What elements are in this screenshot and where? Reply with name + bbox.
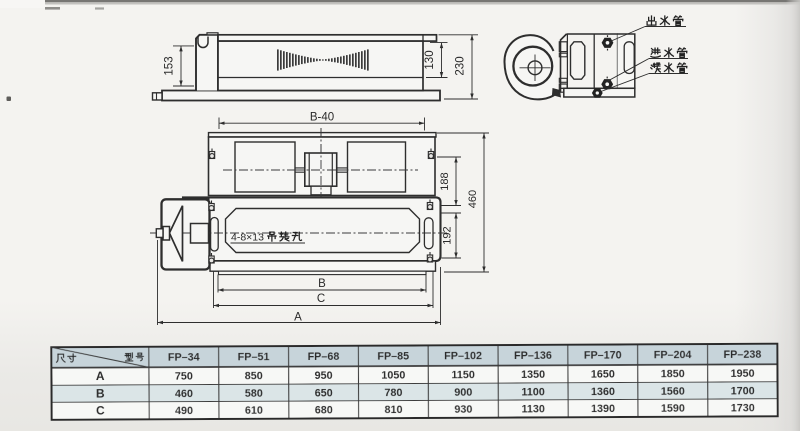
svg-text:C: C xyxy=(96,404,105,418)
svg-text:680: 680 xyxy=(315,404,333,416)
svg-text:780: 780 xyxy=(384,387,402,399)
svg-text:1100: 1100 xyxy=(521,386,544,398)
svg-text:230: 230 xyxy=(455,56,467,75)
svg-text:FP–136: FP–136 xyxy=(514,350,552,362)
svg-text:1390: 1390 xyxy=(591,403,615,415)
svg-text:FP–102: FP–102 xyxy=(444,350,482,362)
svg-text:460: 460 xyxy=(175,388,193,400)
svg-text:FP–68: FP–68 xyxy=(308,351,340,363)
svg-text:A: A xyxy=(294,312,302,324)
svg-text:850: 850 xyxy=(245,370,263,382)
svg-text:930: 930 xyxy=(454,404,472,416)
svg-text:FP–170: FP–170 xyxy=(584,350,622,362)
svg-text:FP–51: FP–51 xyxy=(238,351,270,363)
svg-text:1360: 1360 xyxy=(591,386,615,398)
svg-text:FP–204: FP–204 xyxy=(654,349,692,361)
svg-text:1050: 1050 xyxy=(381,370,405,382)
svg-text:1650: 1650 xyxy=(591,369,615,381)
svg-text:950: 950 xyxy=(315,370,333,382)
svg-text:4-8×13: 4-8×13 xyxy=(231,232,264,244)
svg-text:1590: 1590 xyxy=(661,403,685,415)
svg-text:188: 188 xyxy=(439,172,451,190)
svg-text:610: 610 xyxy=(245,405,263,417)
svg-text:A: A xyxy=(96,369,105,383)
svg-text:460: 460 xyxy=(467,190,479,208)
svg-text:C: C xyxy=(317,293,325,305)
svg-text:810: 810 xyxy=(385,404,403,416)
svg-text:FP–85: FP–85 xyxy=(377,351,409,363)
svg-text:1730: 1730 xyxy=(731,402,755,414)
svg-text:1950: 1950 xyxy=(731,368,755,380)
svg-text:B: B xyxy=(96,387,105,401)
svg-text:FP–238: FP–238 xyxy=(724,349,762,361)
svg-text:1850: 1850 xyxy=(661,368,685,380)
svg-text:192: 192 xyxy=(442,226,454,244)
svg-text:900: 900 xyxy=(454,387,472,399)
svg-text:130: 130 xyxy=(424,50,436,69)
svg-text:153: 153 xyxy=(164,56,176,75)
svg-text:750: 750 xyxy=(175,371,193,383)
svg-text:B: B xyxy=(318,278,326,290)
svg-text:490: 490 xyxy=(175,405,193,417)
svg-text:1130: 1130 xyxy=(521,403,544,415)
svg-text:1560: 1560 xyxy=(661,386,685,398)
svg-text:580: 580 xyxy=(245,388,263,400)
svg-text:650: 650 xyxy=(315,388,333,400)
svg-text:FP–34: FP–34 xyxy=(168,352,200,364)
svg-text:B-40: B-40 xyxy=(310,112,334,124)
svg-text:1150: 1150 xyxy=(451,369,474,381)
svg-text:1700: 1700 xyxy=(731,385,755,397)
svg-text:1350: 1350 xyxy=(521,369,545,381)
